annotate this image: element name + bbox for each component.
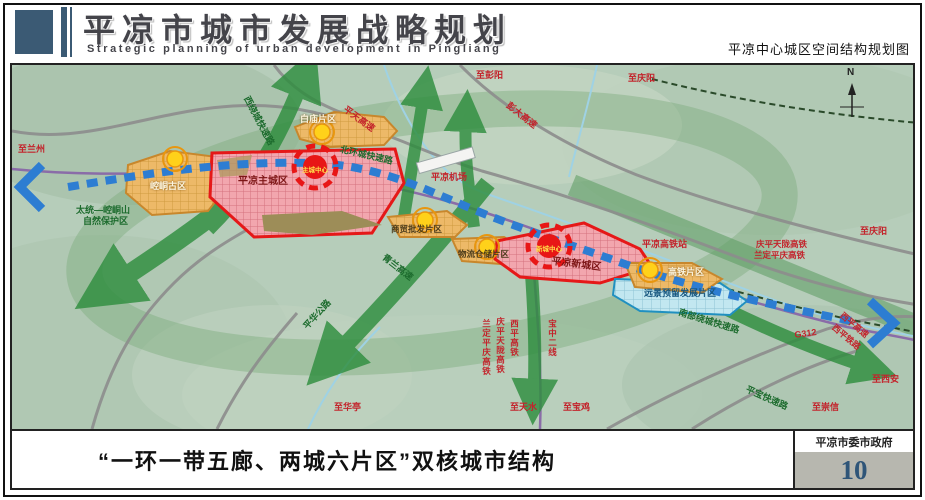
label-to-qingyang-east: 至庆阳 — [860, 227, 887, 236]
label-to-baoji: 至宝鸡 — [563, 403, 590, 412]
label-baimiao-district: 白庙片区 — [300, 115, 336, 124]
footer-box: 平凉市委市政府 10 — [793, 431, 913, 488]
header-accent-bar — [61, 7, 67, 57]
label-main-city: 平凉主城区 — [238, 177, 288, 187]
label-to-huating: 至华亭 — [334, 403, 361, 412]
header-accent-bar-thin — [70, 7, 72, 57]
label-qingping-hsr-s: 庆平天陇高铁 — [496, 317, 505, 374]
label-logistics-district: 物流仓储片区 — [458, 250, 509, 259]
compass-n-label: N — [847, 67, 854, 78]
label-to-xian: 至西安 — [872, 375, 899, 384]
map-subtitle: 平凉中心城区空间结构规划图 — [728, 39, 910, 58]
structure-caption: “一环一带五廊、两城六片区”双核城市结构 — [12, 431, 793, 488]
label-to-chongxin: 至崇信 — [812, 403, 839, 412]
label-to-lanzhou: 至兰州 — [18, 145, 45, 154]
content-frame: N 至兰州 西绕城快速路 白庙片区 平天高速 至彭阳 至庆阳 彭大高速 平凉机场… — [10, 63, 915, 490]
label-new-core: 新城中心 — [527, 243, 571, 253]
label-nature-reserve-2: 自然保护区 — [83, 217, 128, 226]
label-baozhong-line2: 宝中二线 — [548, 319, 557, 357]
header: 平凉市城市发展战略规划 Strategic planning of urban … — [5, 5, 920, 61]
page: 平凉市城市发展战略规划 Strategic planning of urban … — [3, 3, 922, 497]
header-logo-square — [15, 10, 53, 54]
label-qingping-hsr-ne: 庆平天陇高铁 — [756, 240, 807, 249]
label-nature-reserve-1: 太统—崆峒山 — [76, 206, 130, 215]
label-reserved-district: 远景预留发展片区 — [644, 289, 716, 298]
label-kongtong-old-district: 崆峒古区 — [150, 182, 186, 191]
label-landing-hsr-s: 兰定平庆高铁 — [482, 319, 491, 376]
page-subtitle-english: Strategic planning of urban development … — [87, 43, 502, 55]
footer-organization: 平凉市委市政府 — [795, 431, 913, 452]
label-landing-hsr-ne: 兰定平庆高铁 — [754, 251, 805, 260]
label-to-qingyang-north: 至庆阳 — [628, 74, 655, 83]
label-xiping-hsr-s: 西平高铁 — [510, 319, 519, 357]
label-wholesale-district: 商贸批发片区 — [391, 225, 442, 234]
label-main-core: 主城中心 — [293, 164, 337, 174]
label-hsr-district: 高铁片区 — [668, 268, 704, 277]
caption-row: “一环一带五廊、两城六片区”双核城市结构 平凉市委市政府 10 — [12, 431, 913, 488]
label-hsr-station: 平凉高铁站 — [642, 240, 687, 249]
planning-map: N 至兰州 西绕城快速路 白庙片区 平天高速 至彭阳 至庆阳 彭大高速 平凉机场… — [12, 65, 913, 431]
label-to-pengyang: 至彭阳 — [476, 71, 503, 80]
label-to-tianshui: 至天水 — [510, 403, 537, 412]
page-number: 10 — [795, 452, 913, 488]
label-pingliang-airport: 平凉机场 — [431, 173, 467, 182]
